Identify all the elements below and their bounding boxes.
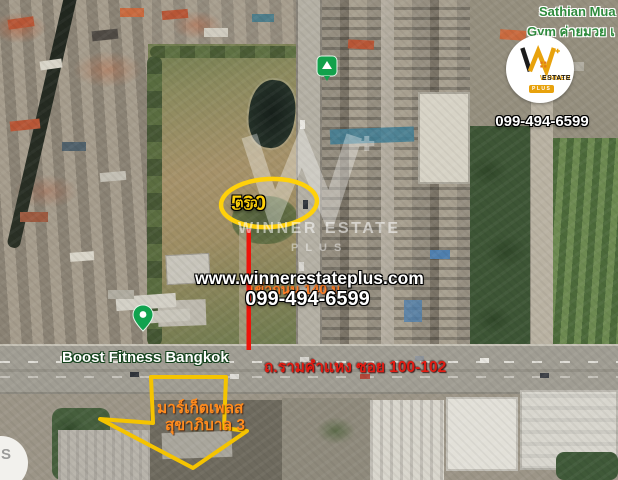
logo-brand-word2: ESTATE <box>542 75 571 82</box>
phone-number-center: 099-494-6599 <box>230 288 385 311</box>
logo-plus-badge: PLUS <box>529 85 554 93</box>
website-label: www.winnerestateplus.com <box>195 268 420 289</box>
phone-number-top: 099-494-6599 <box>492 113 592 130</box>
fitness-label: Boost Fitness Bangkok <box>62 349 229 366</box>
arrow-label-line2: สุขาภิบาล 3 <box>165 412 245 437</box>
plot-area-unit: ตรว <box>235 192 258 213</box>
winner-estate-logo: WINNERESTATE PLUS <box>506 35 574 103</box>
road-name-label: ถ.รามคำแหง ซอย 100-102 <box>264 354 446 379</box>
logo-w-icon <box>519 45 561 75</box>
gym-label-line1: Sathian Mua <box>539 4 616 19</box>
satellite-map: WINNER ESTATE PLUS Sathian Mua Gym ค่ายม… <box>0 0 618 480</box>
watermark-brand-text: WINNER ESTATE <box>238 220 383 238</box>
watermark-plus-text: PLUS <box>291 242 348 254</box>
partial-letter-label: S <box>1 446 11 463</box>
